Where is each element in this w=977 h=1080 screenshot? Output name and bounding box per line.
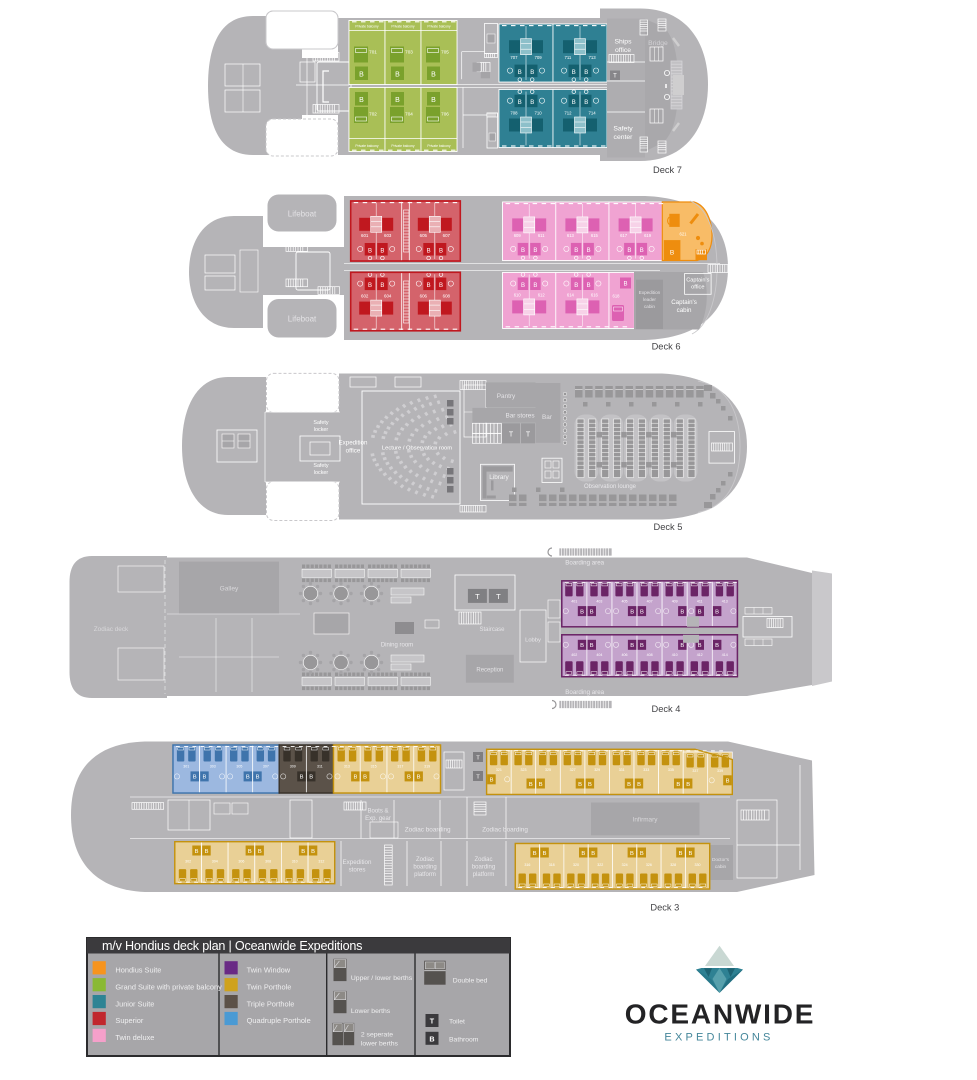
svg-text:612: 612 (538, 293, 546, 298)
svg-text:Deck 3: Deck 3 (650, 903, 679, 913)
svg-text:B: B (380, 283, 384, 289)
svg-text:320: 320 (573, 863, 579, 867)
svg-text:B: B (630, 609, 634, 615)
svg-text:315: 315 (371, 765, 377, 769)
svg-text:B: B (427, 248, 431, 254)
svg-text:305: 305 (236, 765, 242, 769)
svg-text:B: B (429, 1034, 434, 1043)
svg-text:B: B (574, 283, 578, 289)
svg-text:T: T (509, 432, 514, 439)
svg-text:610: 610 (514, 293, 522, 298)
svg-text:B: B (431, 71, 436, 78)
svg-text:325: 325 (545, 768, 551, 772)
svg-text:704: 704 (405, 112, 413, 117)
svg-text:cabin: cabin (677, 307, 692, 314)
svg-text:Boarding area: Boarding area (565, 560, 604, 567)
svg-text:B: B (698, 609, 702, 615)
svg-text:Dining room: Dining room (381, 643, 413, 649)
svg-text:408: 408 (647, 653, 653, 657)
svg-text:T: T (476, 756, 480, 762)
svg-text:platform: platform (414, 872, 436, 878)
svg-text:326: 326 (646, 863, 652, 867)
svg-text:office: office (691, 285, 704, 291)
svg-text:B: B (256, 775, 260, 781)
svg-text:322: 322 (597, 863, 603, 867)
svg-text:621: 621 (680, 231, 688, 236)
svg-text:339: 339 (717, 769, 723, 773)
svg-text:713: 713 (589, 55, 597, 60)
svg-text:B: B (417, 775, 421, 781)
svg-text:B: B (580, 609, 584, 615)
svg-text:Boarding area: Boarding area (565, 689, 604, 696)
svg-text:B: B (686, 782, 690, 788)
svg-text:409: 409 (672, 600, 678, 604)
svg-text:T: T (496, 592, 501, 601)
svg-text:B: B (680, 609, 684, 615)
svg-text:Twin Window: Twin Window (247, 966, 291, 975)
svg-text:EXPEDITIONS: EXPEDITIONS (664, 1032, 773, 1044)
svg-text:Double bed: Double bed (453, 978, 488, 985)
svg-text:lower berths: lower berths (361, 1040, 399, 1047)
svg-text:Captain's: Captain's (686, 278, 709, 284)
svg-text:Zodiac: Zodiac (474, 857, 492, 863)
svg-text:B: B (530, 70, 534, 76)
svg-text:B: B (630, 643, 634, 649)
svg-text:B: B (578, 782, 582, 788)
svg-text:B: B (309, 775, 313, 781)
svg-text:328: 328 (670, 863, 676, 867)
svg-text:platform: platform (473, 872, 495, 878)
svg-text:317: 317 (397, 765, 403, 769)
svg-text:Deck 5: Deck 5 (654, 522, 683, 532)
svg-text:B: B (439, 283, 443, 289)
svg-text:615: 615 (591, 233, 599, 238)
svg-text:403: 403 (596, 600, 602, 604)
svg-text:B: B (539, 782, 543, 788)
svg-text:414: 414 (722, 653, 728, 657)
svg-text:311: 311 (317, 765, 323, 769)
svg-text:Reception: Reception (476, 668, 503, 674)
svg-text:Bridge: Bridge (648, 40, 668, 47)
svg-text:B: B (572, 70, 576, 76)
svg-text:618: 618 (613, 294, 621, 299)
svg-text:Doctor's: Doctor's (712, 857, 730, 862)
svg-text:2 seperate: 2 seperate (361, 1032, 393, 1039)
svg-text:707: 707 (510, 55, 518, 60)
svg-text:402: 402 (571, 653, 577, 657)
svg-text:Observation lounge: Observation lounge (584, 484, 637, 490)
svg-text:Library: Library (489, 474, 509, 481)
svg-text:709: 709 (535, 55, 543, 60)
svg-text:B: B (584, 100, 588, 106)
svg-text:B: B (640, 643, 644, 649)
svg-text:locker: locker (314, 427, 329, 433)
svg-text:B: B (195, 849, 199, 855)
svg-text:B: B (521, 283, 525, 289)
svg-text:412: 412 (697, 653, 703, 657)
svg-text:327: 327 (570, 768, 576, 772)
svg-text:cabin: cabin (644, 304, 655, 309)
svg-text:B: B (529, 782, 533, 788)
svg-text:B: B (587, 283, 591, 289)
svg-text:B: B (590, 609, 594, 615)
svg-text:B: B (490, 778, 494, 784)
svg-text:cabin: cabin (715, 864, 727, 869)
svg-text:Twin Porthole: Twin Porthole (247, 982, 292, 991)
svg-text:B: B (640, 609, 644, 615)
svg-text:B: B (311, 849, 315, 855)
svg-text:611: 611 (538, 233, 545, 238)
svg-text:B: B (623, 282, 627, 288)
svg-text:335: 335 (668, 768, 674, 772)
svg-text:Staircase: Staircase (479, 627, 505, 633)
svg-text:B: B (584, 70, 588, 76)
svg-text:312: 312 (318, 860, 324, 864)
svg-text:B: B (591, 851, 595, 857)
svg-text:office: office (615, 47, 631, 54)
svg-text:710: 710 (535, 110, 543, 115)
svg-text:B: B (407, 775, 411, 781)
svg-text:B: B (590, 643, 594, 649)
svg-text:B: B (431, 97, 436, 104)
svg-text:304: 304 (212, 860, 218, 864)
svg-text:B: B (353, 775, 357, 781)
svg-text:B: B (359, 71, 364, 78)
svg-text:B: B (679, 851, 683, 857)
svg-text:Zodiac boarding: Zodiac boarding (405, 827, 451, 834)
svg-text:B: B (258, 849, 262, 855)
svg-text:413: 413 (722, 600, 728, 604)
svg-text:B: B (521, 248, 525, 254)
svg-text:307: 307 (263, 765, 269, 769)
svg-text:Private balcony: Private balcony (355, 25, 378, 29)
svg-text:B: B (572, 100, 576, 106)
svg-text:329: 329 (594, 768, 600, 772)
svg-text:B: B (246, 775, 250, 781)
svg-text:337: 337 (692, 769, 698, 773)
svg-text:Private balcony: Private balcony (355, 144, 378, 148)
svg-text:Bar: Bar (542, 414, 553, 421)
svg-text:313: 313 (344, 765, 350, 769)
svg-text:Hondius Suite: Hondius Suite (115, 966, 161, 975)
svg-text:613: 613 (567, 233, 575, 238)
svg-text:B: B (580, 643, 584, 649)
svg-text:B: B (715, 643, 719, 649)
svg-text:411: 411 (697, 600, 703, 604)
svg-text:Private balcony: Private balcony (427, 25, 450, 29)
svg-text:B: B (680, 643, 684, 649)
svg-text:B: B (368, 283, 372, 289)
svg-text:Upper / lower berths: Upper / lower berths (351, 975, 413, 982)
svg-text:Lower berths: Lower berths (351, 1008, 391, 1015)
svg-text:701: 701 (369, 50, 377, 55)
svg-text:B: B (193, 775, 197, 781)
svg-text:604: 604 (384, 294, 392, 299)
svg-text:T: T (475, 592, 480, 601)
svg-text:407: 407 (647, 600, 653, 604)
svg-text:Ships: Ships (614, 39, 632, 46)
svg-text:Bathroom: Bathroom (449, 1036, 479, 1043)
svg-text:Expedition: Expedition (343, 859, 372, 866)
svg-text:boarding: boarding (472, 865, 495, 871)
svg-text:606: 606 (420, 294, 428, 299)
svg-text:301: 301 (183, 765, 189, 769)
svg-text:602: 602 (361, 294, 369, 299)
svg-text:T: T (476, 775, 480, 781)
svg-text:B: B (359, 97, 364, 104)
svg-text:T: T (526, 432, 531, 439)
svg-text:boarding: boarding (413, 865, 436, 871)
svg-text:stores: stores (349, 867, 366, 874)
svg-text:OCEANWIDE: OCEANWIDE (625, 999, 815, 1030)
svg-text:Private balcony: Private balcony (391, 144, 414, 148)
svg-text:Captain's: Captain's (671, 299, 697, 306)
svg-text:601: 601 (361, 233, 369, 238)
svg-text:B: B (363, 775, 367, 781)
svg-text:309: 309 (290, 765, 296, 769)
svg-text:T: T (430, 1017, 435, 1026)
svg-text:B: B (676, 782, 680, 788)
svg-text:Safety: Safety (313, 463, 329, 469)
svg-text:Deck 4: Deck 4 (652, 704, 681, 714)
svg-text:B: B (300, 775, 304, 781)
svg-text:324: 324 (622, 863, 628, 867)
svg-text:702: 702 (369, 112, 377, 117)
svg-text:B: B (637, 782, 641, 788)
svg-text:B: B (574, 248, 578, 254)
svg-text:B: B (439, 248, 443, 254)
svg-text:404: 404 (596, 653, 602, 657)
svg-text:603: 603 (384, 233, 392, 238)
svg-text:614: 614 (567, 293, 575, 298)
svg-text:333: 333 (643, 768, 649, 772)
svg-text:Safety: Safety (313, 420, 329, 426)
svg-text:Lifeboat: Lifeboat (288, 210, 317, 219)
svg-text:Deck 6: Deck 6 (652, 342, 681, 352)
svg-text:Grand Suite with private balco: Grand Suite with private balcony (115, 982, 222, 991)
svg-text:607: 607 (443, 233, 451, 238)
svg-text:B: B (427, 283, 431, 289)
svg-text:B: B (715, 609, 719, 615)
svg-text:leader: leader (643, 297, 656, 302)
svg-text:Expedition: Expedition (639, 290, 661, 295)
svg-text:Zodiac: Zodiac (416, 857, 434, 863)
svg-text:B: B (533, 851, 537, 857)
svg-text:B: B (518, 70, 522, 76)
svg-text:B: B (518, 100, 522, 106)
svg-text:B: B (248, 849, 252, 855)
svg-text:Zodiac boarding: Zodiac boarding (482, 827, 528, 834)
svg-text:Superior: Superior (115, 1016, 143, 1025)
svg-text:Triple Porthole: Triple Porthole (247, 999, 295, 1008)
svg-text:705: 705 (441, 50, 449, 55)
svg-text:locker: locker (314, 470, 329, 476)
svg-text:323: 323 (521, 768, 527, 772)
svg-text:712: 712 (564, 110, 572, 115)
svg-text:B: B (581, 851, 585, 857)
svg-text:Private balcony: Private balcony (427, 144, 450, 148)
svg-text:303: 303 (210, 765, 216, 769)
svg-text:708: 708 (510, 110, 518, 115)
svg-text:401: 401 (571, 600, 577, 604)
svg-text:T: T (613, 74, 617, 80)
svg-text:B: B (543, 851, 547, 857)
svg-text:711: 711 (564, 55, 571, 60)
svg-text:Exp. gear: Exp. gear (365, 816, 391, 822)
svg-text:Zodiac deck: Zodiac deck (94, 626, 129, 633)
svg-text:B: B (395, 71, 400, 78)
svg-text:302: 302 (185, 860, 191, 864)
svg-text:Deck 7: Deck 7 (653, 165, 682, 175)
svg-text:619: 619 (644, 233, 652, 238)
svg-text:B: B (640, 248, 644, 254)
svg-text:410: 410 (672, 653, 678, 657)
svg-text:B: B (368, 248, 372, 254)
svg-text:318: 318 (549, 863, 555, 867)
svg-text:Galley: Galley (220, 586, 239, 593)
svg-text:608: 608 (443, 294, 451, 299)
svg-text:B: B (205, 849, 209, 855)
svg-text:B: B (688, 851, 692, 857)
svg-text:Junior Suite: Junior Suite (115, 999, 154, 1008)
svg-text:B: B (380, 248, 384, 254)
svg-text:Expedition: Expedition (339, 440, 368, 447)
svg-text:B: B (640, 851, 644, 857)
svg-text:center: center (614, 134, 634, 141)
svg-text:B: B (395, 97, 400, 104)
svg-text:319: 319 (424, 765, 430, 769)
svg-text:Pantry: Pantry (497, 393, 516, 400)
svg-text:Lobby: Lobby (525, 638, 541, 644)
svg-text:Safety: Safety (613, 126, 633, 133)
svg-text:Toilet: Toilet (449, 1019, 465, 1026)
svg-text:B: B (533, 283, 537, 289)
svg-text:616: 616 (591, 293, 599, 298)
svg-text:310: 310 (292, 860, 298, 864)
svg-text:B: B (627, 248, 631, 254)
svg-text:B: B (202, 775, 206, 781)
svg-text:B: B (627, 782, 631, 788)
svg-text:Lecture / Observation room: Lecture / Observation room (382, 446, 452, 452)
svg-text:617: 617 (620, 233, 628, 238)
svg-text:B: B (726, 779, 730, 785)
svg-text:605: 605 (420, 233, 428, 238)
svg-text:703: 703 (405, 50, 413, 55)
svg-text:Infirmary: Infirmary (633, 817, 659, 824)
svg-text:331: 331 (619, 768, 625, 772)
svg-text:B: B (588, 782, 592, 788)
svg-text:B: B (530, 100, 534, 106)
svg-text:Lifeboat: Lifeboat (288, 315, 317, 324)
svg-text:Twin deluxe: Twin deluxe (115, 1033, 154, 1042)
svg-text:B: B (301, 849, 305, 855)
svg-text:Bar stores: Bar stores (505, 413, 534, 420)
svg-text:B: B (670, 250, 674, 257)
svg-text:321: 321 (496, 768, 502, 772)
svg-text:306: 306 (238, 860, 244, 864)
svg-text:Boots &: Boots & (367, 809, 388, 815)
svg-text:B: B (630, 851, 634, 857)
svg-text:Private balcony: Private balcony (391, 25, 414, 29)
svg-text:m/v Hondius deck plan | Oceanw: m/v Hondius deck plan | Oceanwide Expedi… (102, 939, 362, 953)
svg-text:308: 308 (265, 860, 271, 864)
svg-text:Quadruple Porthole: Quadruple Porthole (247, 1016, 311, 1025)
svg-text:316: 316 (524, 863, 530, 867)
svg-text:706: 706 (441, 112, 449, 117)
svg-text:B: B (587, 248, 591, 254)
svg-text:405: 405 (622, 600, 628, 604)
svg-text:B: B (533, 248, 537, 254)
svg-text:714: 714 (589, 110, 597, 115)
svg-text:office: office (346, 448, 361, 455)
svg-text:406: 406 (622, 653, 628, 657)
svg-text:609: 609 (514, 233, 522, 238)
svg-text:330: 330 (695, 863, 701, 867)
svg-text:B: B (698, 643, 702, 649)
